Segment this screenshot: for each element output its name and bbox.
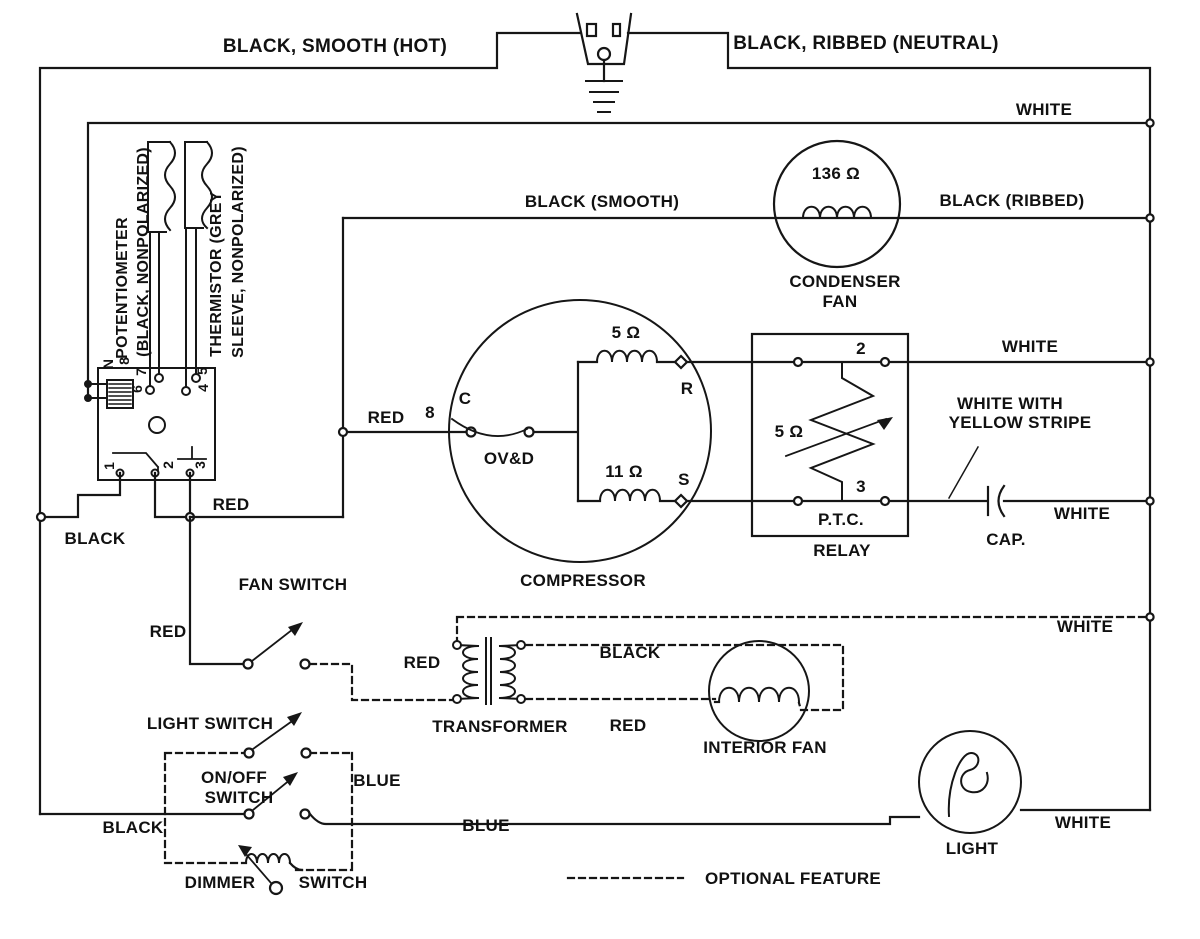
capacitor-symbol [949,447,1150,516]
neutral-wire-label: BLACK, RIBBED (NEUTRAL) [733,33,999,55]
board-terminal-7: 7 [133,368,149,376]
wire-number-8: 8 [425,403,435,423]
compressor-feed-wires [339,218,1150,517]
relay-terminal-2: 2 [856,339,866,359]
board-terminal-2: 2 [160,461,176,469]
condenser-fan-resistance: 136 Ω [812,164,860,184]
thermistor-label-1: THERMISTOR (GREY [208,191,226,356]
board-terminal-8: 8 [116,357,132,365]
dimmer-switch-label-2: SWITCH [299,873,368,893]
condenser-fan-symbol [774,141,900,267]
board-terminal-1: 1 [101,462,117,470]
interior-fan-name: INTERIOR FAN [703,738,827,758]
red-secondary-label: RED [610,716,647,736]
onoff-switch-label-2: SWITCH [205,788,274,808]
light-switch-label: LIGHT SWITCH [147,714,273,734]
white-yellow-label-1: WHITE WITH [957,394,1063,414]
board-terminal-6: 6 [129,385,145,393]
white-light-label: WHITE [1055,813,1111,833]
condenser-fan-name-2: FAN [823,292,858,312]
compressor-overload: OV&D [484,449,534,469]
compressor-terminal-c: C [459,389,472,409]
black-smooth-label: BLACK (SMOOTH) [525,192,679,212]
board-terminal-5: 5 [194,367,210,375]
relay-terminal-3: 3 [856,477,866,497]
board-hookup-wires [37,473,343,521]
hot-wire-label: BLACK, SMOOTH (HOT) [223,36,447,58]
red-primary-label: RED [404,653,441,673]
interior-fan-symbol [709,641,809,741]
white-relay-label: WHITE [1002,337,1058,357]
blue-bottom-label: BLUE [462,816,509,836]
black-secondary-label: BLACK [600,643,661,663]
black-bottom-label: BLACK [103,818,164,838]
wiring-diagram: BLACK, SMOOTH (HOT) BLACK, RIBBED (NEUTR… [0,0,1200,939]
compressor-name: COMPRESSOR [520,571,646,591]
transformer-name: TRANSFORMER [432,717,568,737]
white-top-label: WHITE [1016,100,1072,120]
wiring-linework [0,0,1200,939]
relay-name-1: P.T.C. [818,510,864,530]
condenser-fan-name-1: CONDENSER [789,272,900,292]
light-name: LIGHT [946,839,999,859]
board-terminal-3: 3 [192,461,208,469]
fan-switch-label: FAN SWITCH [239,575,348,595]
compressor-run-winding: 5 Ω [612,323,641,343]
power-plug-icon [577,14,631,112]
blue-vertical-label: BLUE [353,771,400,791]
light-bulb-symbol [919,731,1150,833]
board-terminal-n: N [100,359,116,369]
compressor-terminal-s: S [678,470,690,490]
red-board-label: RED [213,495,250,515]
red-fan-switch-label: RED [150,622,187,642]
dimmer-switch-label-1: DIMMER [185,873,256,893]
compressor-terminal-r: R [681,379,694,399]
white-cap-label: WHITE [1054,504,1110,524]
relay-name-2: RELAY [813,541,871,561]
compressor-start-winding: 11 Ω [605,462,643,482]
white-transformer-label: WHITE [1057,617,1113,637]
black-ribbed-label: BLACK (RIBBED) [940,191,1085,211]
legend-optional-label: OPTIONAL FEATURE [705,869,881,889]
potentiometer-label-2: (BLACK, NONPOLARIZED) [135,147,153,357]
potentiometer-label-1: POTENTIOMETER [114,217,132,359]
onoff-switch-label-1: ON/OFF [201,768,267,788]
transformer-symbol [453,638,525,704]
thermistor-label-2: SLEEVE, NONPOLARIZED) [230,146,248,358]
board-terminal-4: 4 [195,384,211,392]
relay-resistance: 5 Ω [775,422,804,442]
black-board-label: BLACK [65,529,126,549]
white-yellow-label-2: YELLOW STRIPE [949,413,1092,433]
red-compressor-label: RED [368,408,405,428]
capacitor-name: CAP. [986,530,1026,550]
